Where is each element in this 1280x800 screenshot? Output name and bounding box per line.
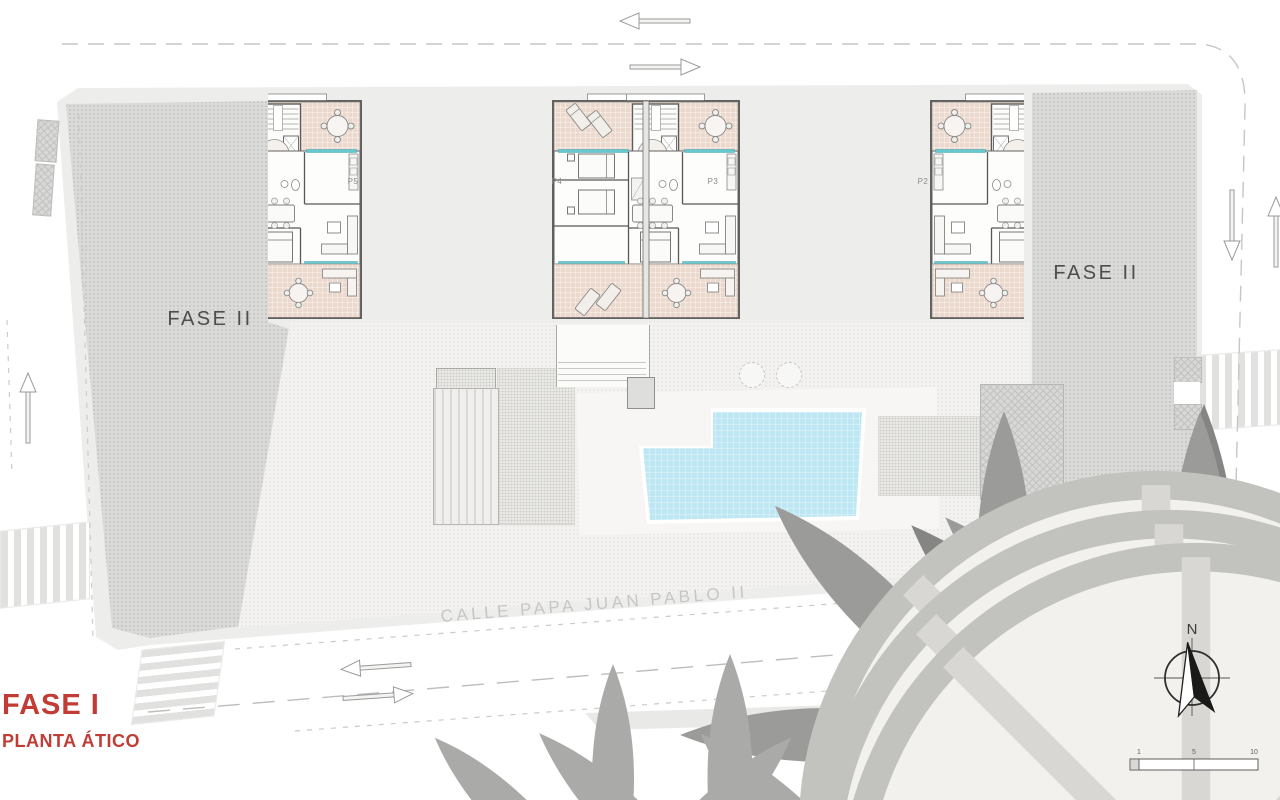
building-fase1-floorplan: [268, 92, 1024, 323]
unit-label-p3: P3: [701, 177, 725, 186]
traffic-arrow-right-icon: [343, 686, 414, 707]
legend-floor-title: PLANTA ÁTICO: [2, 731, 140, 752]
curb-ramp-hatch: [35, 119, 60, 162]
compass-north-label: N: [1187, 621, 1198, 638]
scale-tick-10: 10: [1250, 749, 1258, 756]
sidewalk-gap: [1174, 382, 1200, 404]
traffic-arrow-up-icon: [20, 373, 36, 443]
site-plan-canvas: FASE II FASE II P5 P4 P3 P2 CALLE PAPA J…: [0, 0, 1280, 800]
traffic-arrow-left-icon: [341, 657, 412, 678]
phase2-lower-terrace: [980, 384, 1064, 500]
phase2-right-label: FASE II: [1044, 262, 1148, 285]
unit-label-p2: P2: [911, 177, 935, 186]
round-planter: [739, 362, 765, 388]
north-compass-icon: N: [1150, 618, 1234, 720]
unit-label-p5: P5: [341, 177, 365, 186]
drawing-legend: FASE I PLANTA ÁTICO: [2, 688, 140, 752]
scale-tick-1: 1: [1137, 749, 1141, 756]
curb-ramp-hatch: [32, 163, 55, 216]
scale-bar: 1 5 10: [1126, 744, 1270, 780]
curb-ramp-hatch: [1174, 404, 1202, 430]
traffic-arrow-left-icon: [620, 13, 690, 29]
pergola-structure: [433, 388, 499, 525]
road-line-far-west: [7, 320, 12, 475]
pool-shower-block: [627, 377, 655, 409]
unit-label-p4: P4: [545, 177, 569, 186]
site-boundary-line: [1049, 790, 1280, 794]
phase2-left-label: FASE II: [150, 308, 270, 331]
round-planter: [776, 362, 802, 388]
lawn-area: [497, 368, 575, 525]
pedestrian-crossing-southwest: [131, 641, 225, 725]
pedestrian-crossing-east: [1198, 349, 1280, 431]
traffic-arrow-down-icon: [1224, 190, 1240, 260]
scale-tick-5: 5: [1192, 749, 1196, 756]
traffic-arrow-up-icon: [1268, 197, 1280, 267]
pedestrian-crossing-west: [0, 521, 90, 608]
curb-ramp-hatch: [1174, 357, 1202, 383]
garden-bed-east: [878, 416, 980, 496]
traffic-arrow-right-icon: [630, 59, 700, 75]
legend-phase-title: FASE I: [2, 688, 140, 723]
expansion-joint: [643, 101, 649, 318]
